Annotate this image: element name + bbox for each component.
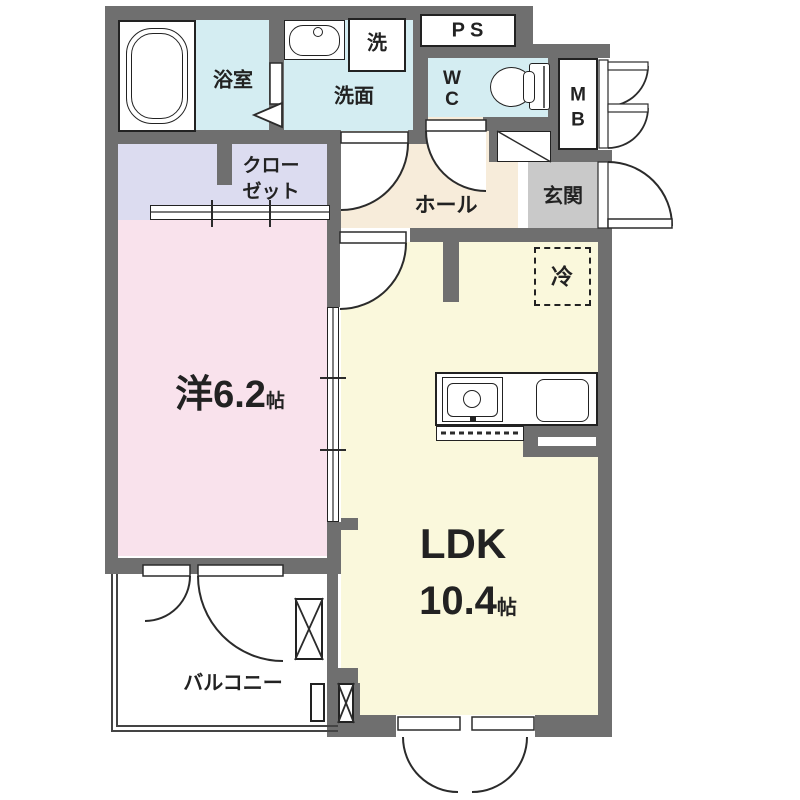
western-ldk-sliding-door bbox=[327, 307, 339, 522]
wall-bath-divider bbox=[269, 20, 284, 131]
room-ldk bbox=[341, 242, 598, 715]
wall-right bbox=[598, 228, 612, 737]
wall-balcony-right bbox=[327, 570, 338, 737]
label-meter-box: M B bbox=[570, 83, 586, 132]
label-ldk-size: 10.4帖 bbox=[419, 578, 517, 624]
balcony-box bbox=[310, 683, 325, 722]
label-closet: クロー ゼット bbox=[242, 153, 299, 204]
bathtub-tub-inner bbox=[131, 33, 183, 119]
floor-plan: 浴室 洗面 洗 PS W C M B 玄関 ホール クロー ゼット 洋6.2帖 … bbox=[0, 0, 800, 800]
door-swing-south-left bbox=[403, 737, 458, 792]
wall-mb-bottom bbox=[551, 150, 612, 162]
wall-left bbox=[105, 6, 118, 570]
shaft-box bbox=[295, 598, 323, 660]
wall-stub-center bbox=[341, 518, 358, 530]
entrance-step bbox=[518, 162, 528, 228]
door-swing-entrance bbox=[608, 162, 672, 226]
wall-closet-top-right bbox=[408, 130, 428, 144]
label-ldk: LDK bbox=[420, 520, 506, 568]
door-leaf-entrance bbox=[608, 219, 672, 228]
door-swing-south-right bbox=[472, 737, 527, 792]
door-arc-south-left bbox=[403, 737, 458, 792]
door-swing-mb-lower bbox=[608, 108, 648, 148]
kitchen-stove bbox=[536, 379, 589, 422]
label-balcony: バルコニー bbox=[183, 673, 283, 696]
wall-wc-bottom bbox=[483, 117, 563, 131]
door-leaf-mb-upper bbox=[608, 62, 648, 70]
door-leaf-mb-lower bbox=[608, 104, 648, 112]
wall-notch bbox=[327, 668, 358, 683]
label-western-size: 洋6.2 bbox=[175, 374, 266, 416]
label-washroom: 洗面 bbox=[334, 86, 374, 109]
label-laundry: 洗 bbox=[367, 33, 387, 56]
door-swing-mb-upper bbox=[608, 66, 648, 106]
kitchen-counter-edge bbox=[436, 426, 524, 441]
wall-closet-stub bbox=[217, 144, 232, 185]
label-western-room: 洋6.2帖 bbox=[175, 374, 285, 418]
wall-mb-top bbox=[533, 44, 610, 58]
label-western-unit: 帖 bbox=[266, 391, 285, 412]
label-closet-line1: クロー bbox=[242, 155, 299, 176]
wall-shoebox-left bbox=[489, 131, 497, 162]
wall-kitchen-stub bbox=[443, 242, 459, 302]
door-leaf-south-right bbox=[472, 717, 534, 730]
label-pipe-space: PS bbox=[452, 20, 489, 43]
kitchen-pass-slot bbox=[538, 437, 596, 446]
door-jamb-entrance bbox=[598, 162, 608, 228]
label-hall: ホール bbox=[415, 194, 478, 218]
label-wc-line2: C bbox=[445, 89, 459, 110]
label-ldk-size-value: 10.4 bbox=[419, 579, 497, 623]
label-mb-line2: B bbox=[571, 109, 585, 130]
vanity-faucet bbox=[313, 27, 323, 37]
door-arc-mb-lower bbox=[608, 108, 648, 148]
wall-western-bottom bbox=[105, 558, 341, 574]
kitchen-sink-drain bbox=[463, 390, 481, 408]
label-refrigerator: 冷 bbox=[551, 264, 573, 289]
wall-hall-bottom bbox=[410, 228, 612, 242]
shoe-cabinet bbox=[497, 131, 551, 162]
label-wc: W C bbox=[443, 69, 461, 111]
toilet-seat bbox=[523, 71, 535, 103]
door-arc-south-right bbox=[472, 737, 527, 792]
label-bathroom: 浴室 bbox=[213, 70, 253, 93]
label-wc-line1: W bbox=[443, 68, 461, 89]
door-jamb-mb bbox=[599, 60, 608, 148]
door-arc-mb-upper bbox=[608, 66, 648, 106]
label-ldk-size-unit: 帖 bbox=[497, 597, 517, 619]
shaft-box-small bbox=[338, 683, 354, 723]
closet-sliding-door bbox=[150, 205, 330, 220]
door-leaf-south-left bbox=[398, 717, 460, 730]
wall-ps-right bbox=[515, 6, 533, 47]
label-entrance: 玄関 bbox=[543, 186, 583, 209]
label-closet-line2: ゼット bbox=[242, 181, 299, 202]
wall-closet-top-left bbox=[105, 130, 341, 144]
door-arc-entrance bbox=[608, 162, 672, 226]
kitchen-sink-dot bbox=[470, 417, 476, 422]
label-mb-line1: M bbox=[570, 84, 586, 105]
wall-bottom-right bbox=[535, 715, 612, 737]
